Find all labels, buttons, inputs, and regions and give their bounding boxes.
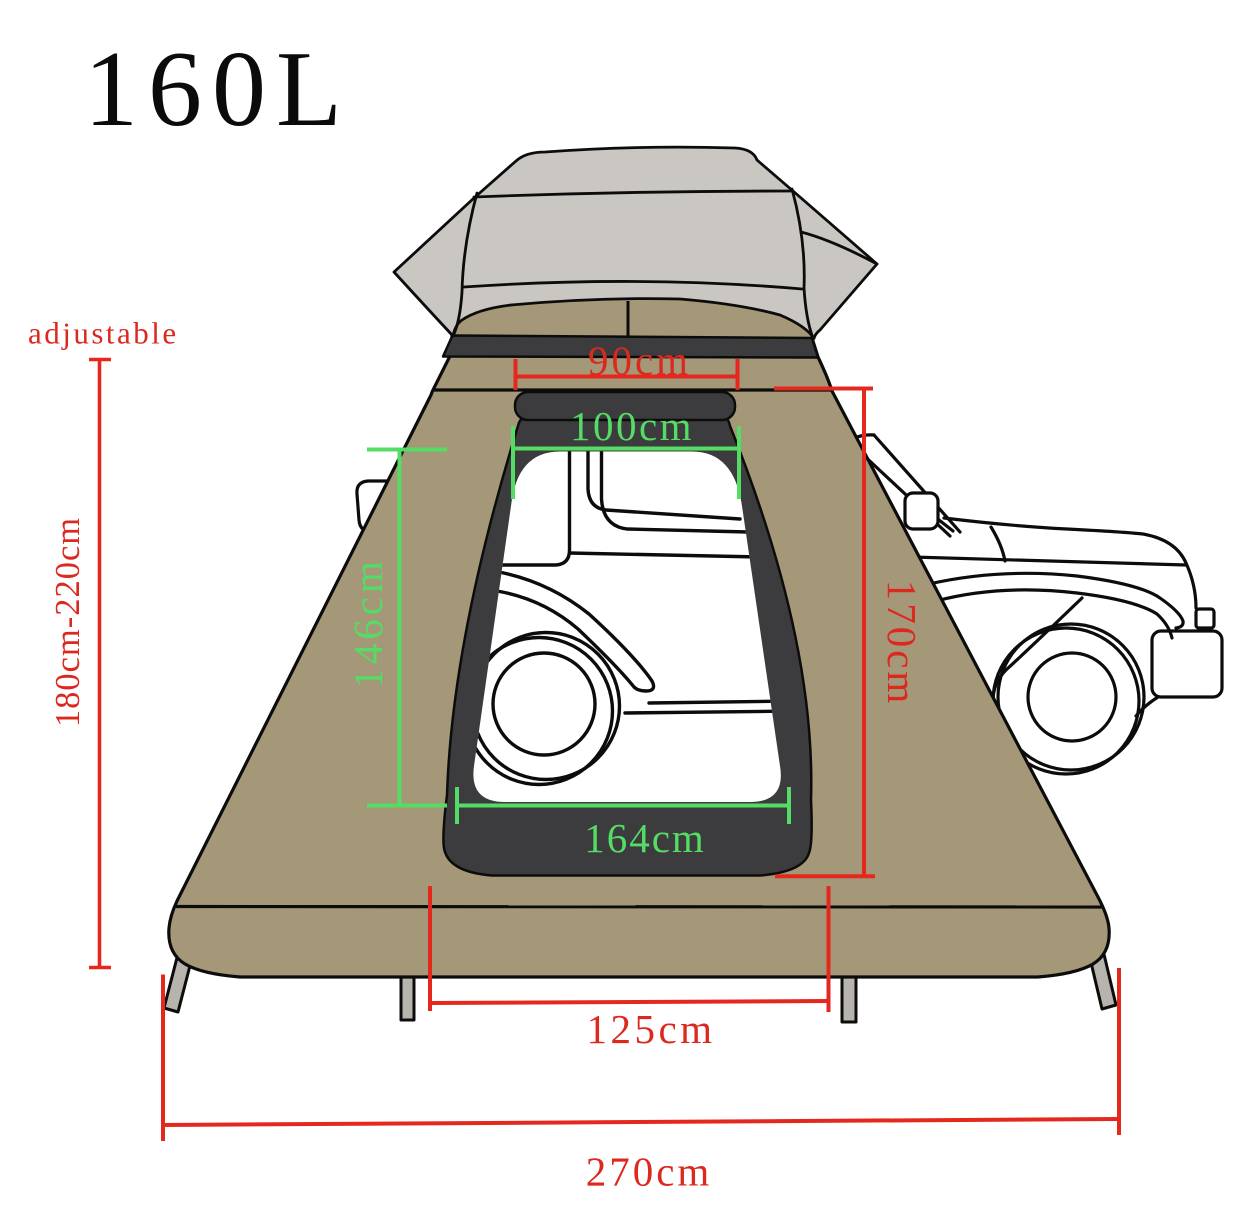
svg-text:100cm: 100cm [570,403,694,449]
svg-text:180cm-220cm: 180cm-220cm [49,517,87,727]
svg-text:146cm: 146cm [345,557,391,689]
svg-text:90cm: 90cm [588,338,691,384]
svg-text:160L: 160L [84,30,352,149]
svg-text:164cm: 164cm [584,815,706,861]
svg-text:125cm: 125cm [586,1006,715,1052]
svg-text:270cm: 270cm [586,1149,713,1195]
svg-text:adjustable: adjustable [28,316,179,351]
svg-text:170cm: 170cm [879,580,925,707]
